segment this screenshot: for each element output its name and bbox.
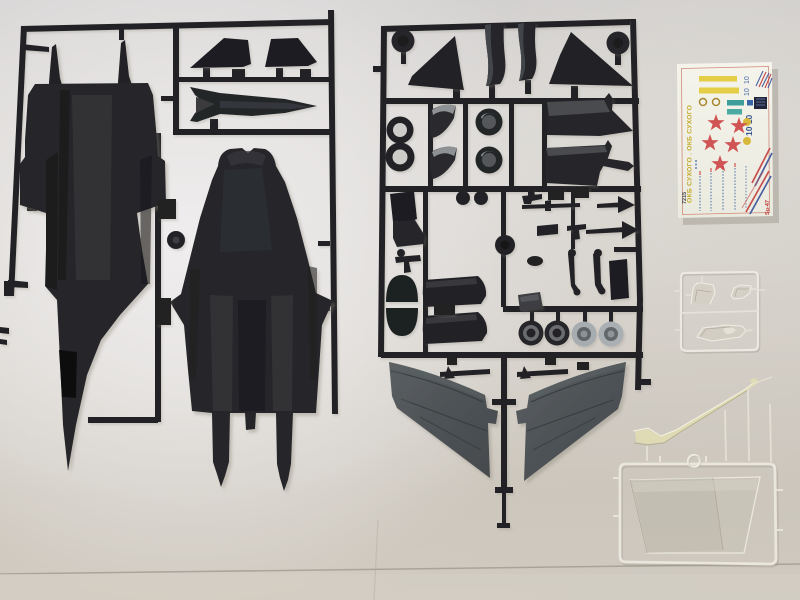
svg-text:10: 10 xyxy=(744,88,751,96)
svg-text:10: 10 xyxy=(744,76,751,84)
svg-text:7215: 7215 xyxy=(682,192,688,204)
svg-text:Su-47: Su-47 xyxy=(765,200,771,215)
svg-text:ОКБ СУХОГО . ОКБ СУХОГО: ОКБ СУХОГО . ОКБ СУХОГО xyxy=(687,105,694,203)
